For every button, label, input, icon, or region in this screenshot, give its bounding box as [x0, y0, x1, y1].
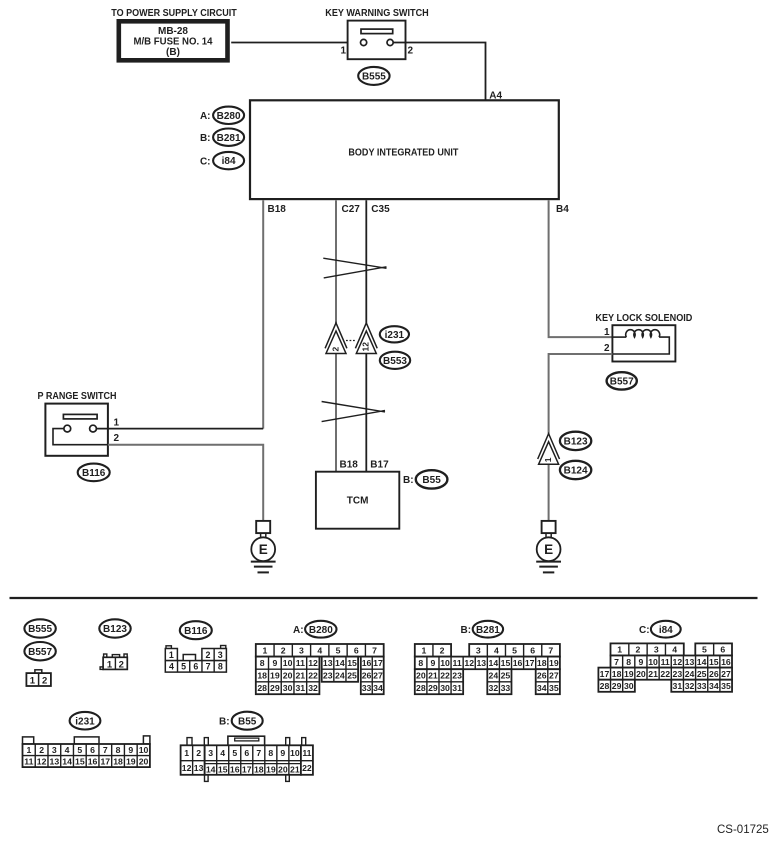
- svg-text:(B): (B): [166, 47, 180, 58]
- svg-text:30: 30: [440, 683, 450, 693]
- svg-text:B116: B116: [82, 468, 106, 479]
- svg-text:26: 26: [709, 669, 719, 679]
- svg-text:MB-28: MB-28: [158, 26, 188, 37]
- svg-text:17: 17: [242, 765, 252, 775]
- svg-text:B17: B17: [370, 460, 389, 471]
- svg-text:12: 12: [672, 657, 682, 667]
- svg-text:18: 18: [612, 669, 622, 679]
- svg-text:12: 12: [464, 658, 474, 668]
- svg-text:15: 15: [218, 765, 228, 775]
- svg-text:32: 32: [489, 683, 499, 693]
- svg-text:A:: A:: [293, 625, 304, 636]
- svg-text:7: 7: [614, 657, 619, 667]
- svg-text:7: 7: [372, 646, 377, 656]
- svg-text:B18: B18: [268, 204, 287, 215]
- svg-text:25: 25: [347, 671, 357, 681]
- svg-text:E: E: [259, 542, 268, 557]
- svg-text:2: 2: [196, 748, 201, 758]
- svg-text:11: 11: [296, 658, 305, 668]
- svg-text:30: 30: [624, 681, 634, 691]
- svg-text:M/B FUSE NO. 14: M/B FUSE NO. 14: [134, 36, 213, 47]
- svg-text:29: 29: [270, 683, 280, 693]
- svg-text:6: 6: [193, 662, 198, 672]
- svg-text:7: 7: [103, 745, 108, 755]
- svg-text:B281: B281: [476, 625, 500, 636]
- svg-text:B:: B:: [403, 475, 414, 486]
- svg-text:1: 1: [26, 745, 31, 755]
- svg-text:9: 9: [272, 658, 277, 668]
- svg-text:27: 27: [549, 671, 559, 681]
- svg-text:28: 28: [257, 683, 267, 693]
- svg-text:C:: C:: [639, 625, 650, 636]
- svg-text:23: 23: [673, 669, 683, 679]
- svg-text:32: 32: [685, 681, 695, 691]
- svg-text:14: 14: [335, 658, 345, 668]
- svg-text:14: 14: [697, 657, 707, 667]
- svg-text:3: 3: [208, 748, 213, 758]
- svg-text:22: 22: [440, 671, 450, 681]
- svg-text:7: 7: [206, 662, 211, 672]
- svg-text:1: 1: [421, 646, 426, 656]
- svg-text:A:: A:: [200, 111, 211, 122]
- svg-text:34: 34: [709, 681, 719, 691]
- svg-text:B55: B55: [238, 716, 257, 727]
- svg-text:7: 7: [548, 646, 553, 656]
- svg-text:20: 20: [139, 757, 149, 767]
- svg-text:B:: B:: [461, 625, 472, 636]
- svg-text:8: 8: [268, 748, 273, 758]
- svg-text:16: 16: [513, 658, 523, 668]
- svg-text:8: 8: [218, 662, 223, 672]
- svg-text:4: 4: [220, 748, 225, 758]
- svg-text:23: 23: [452, 671, 462, 681]
- svg-text:17: 17: [373, 658, 383, 668]
- svg-text:4: 4: [494, 646, 499, 656]
- svg-text:5: 5: [232, 748, 237, 758]
- svg-text:24: 24: [685, 669, 695, 679]
- svg-text:KEY WARNING SWITCH: KEY WARNING SWITCH: [325, 8, 429, 19]
- svg-text:6: 6: [244, 748, 249, 758]
- svg-text:27: 27: [373, 671, 383, 681]
- svg-text:16: 16: [721, 657, 731, 667]
- svg-text:19: 19: [624, 669, 634, 679]
- svg-text:B4: B4: [556, 204, 569, 215]
- svg-text:21: 21: [290, 765, 300, 775]
- svg-text:B123: B123: [103, 624, 127, 635]
- svg-text:1: 1: [184, 748, 189, 758]
- svg-text:6: 6: [530, 646, 535, 656]
- svg-text:20: 20: [636, 669, 646, 679]
- svg-text:33: 33: [697, 681, 707, 691]
- svg-text:B116: B116: [184, 626, 208, 637]
- svg-text:16: 16: [88, 757, 98, 767]
- svg-text:1: 1: [341, 46, 347, 57]
- svg-text:10: 10: [139, 745, 149, 755]
- svg-text:17: 17: [525, 658, 535, 668]
- svg-text:13: 13: [476, 658, 486, 668]
- svg-text:2: 2: [206, 650, 211, 660]
- svg-text:18: 18: [537, 658, 547, 668]
- svg-text:1: 1: [604, 327, 610, 338]
- svg-text:12: 12: [361, 342, 371, 352]
- svg-text:2: 2: [408, 46, 414, 57]
- svg-text:33: 33: [501, 683, 511, 693]
- svg-text:10: 10: [648, 657, 658, 667]
- svg-text:14: 14: [489, 658, 499, 668]
- svg-text:8: 8: [116, 745, 121, 755]
- svg-text:9: 9: [638, 657, 643, 667]
- svg-text:4: 4: [672, 645, 677, 655]
- svg-text:19: 19: [126, 757, 136, 767]
- svg-text:C:: C:: [200, 156, 211, 167]
- svg-text:3: 3: [52, 745, 57, 755]
- svg-text:8: 8: [260, 658, 265, 668]
- svg-text:C27: C27: [342, 204, 361, 215]
- svg-text:3: 3: [299, 646, 304, 656]
- svg-text:B280: B280: [309, 625, 333, 636]
- svg-text:29: 29: [428, 683, 438, 693]
- svg-text:2: 2: [119, 660, 124, 671]
- svg-text:15: 15: [75, 757, 85, 767]
- svg-text:B553: B553: [383, 356, 407, 367]
- svg-text:34: 34: [537, 683, 547, 693]
- svg-text:B123: B123: [564, 437, 588, 448]
- svg-text:5: 5: [77, 745, 82, 755]
- svg-text:23: 23: [323, 671, 333, 681]
- svg-text:21: 21: [648, 669, 658, 679]
- svg-text:C35: C35: [371, 204, 390, 215]
- svg-text:26: 26: [537, 671, 547, 681]
- svg-text:7: 7: [256, 748, 261, 758]
- svg-text:13: 13: [685, 657, 695, 667]
- svg-text:17: 17: [100, 757, 110, 767]
- svg-text:1: 1: [543, 457, 553, 462]
- svg-text:B280: B280: [217, 111, 241, 122]
- svg-text:3: 3: [218, 650, 223, 660]
- svg-text:27: 27: [721, 669, 731, 679]
- svg-text:20: 20: [283, 671, 293, 681]
- svg-text:1: 1: [263, 646, 268, 656]
- svg-text:17: 17: [600, 669, 610, 679]
- svg-text:11: 11: [24, 757, 33, 767]
- svg-text:32: 32: [308, 683, 318, 693]
- svg-text:13: 13: [323, 658, 333, 668]
- svg-text:2: 2: [636, 645, 641, 655]
- svg-text:33: 33: [362, 683, 372, 693]
- svg-text:29: 29: [612, 681, 622, 691]
- svg-text:10: 10: [290, 748, 300, 758]
- svg-text:1: 1: [169, 650, 174, 660]
- svg-text:12: 12: [308, 658, 318, 668]
- svg-text:i231: i231: [385, 330, 405, 341]
- svg-text:2: 2: [330, 347, 340, 352]
- svg-text:1: 1: [107, 660, 113, 671]
- svg-text:35: 35: [721, 681, 731, 691]
- svg-text:9: 9: [431, 658, 436, 668]
- svg-text:9: 9: [280, 748, 285, 758]
- svg-text:i231: i231: [75, 716, 95, 727]
- svg-text:25: 25: [501, 671, 511, 681]
- svg-text:6: 6: [720, 645, 725, 655]
- svg-text:B555: B555: [28, 624, 52, 635]
- svg-text:P RANGE SWITCH: P RANGE SWITCH: [38, 391, 117, 402]
- svg-text:B557: B557: [610, 377, 634, 388]
- svg-text:18: 18: [257, 671, 267, 681]
- svg-text:12: 12: [182, 763, 192, 773]
- svg-text:B281: B281: [217, 133, 241, 144]
- svg-text:11: 11: [302, 748, 311, 758]
- svg-text:22: 22: [660, 669, 670, 679]
- svg-text:19: 19: [266, 765, 276, 775]
- svg-text:TO POWER SUPPLY CIRCUIT: TO POWER SUPPLY CIRCUIT: [111, 8, 237, 19]
- svg-text:15: 15: [501, 658, 511, 668]
- svg-text:5: 5: [336, 646, 341, 656]
- svg-text:8: 8: [626, 657, 631, 667]
- svg-text:26: 26: [362, 671, 372, 681]
- svg-text:TCM: TCM: [347, 496, 369, 507]
- svg-text:11: 11: [453, 658, 462, 668]
- svg-text:B557: B557: [28, 647, 52, 658]
- svg-text:35: 35: [549, 683, 559, 693]
- svg-text:22: 22: [302, 763, 312, 773]
- svg-text:13: 13: [50, 757, 60, 767]
- svg-text:B555: B555: [362, 72, 386, 83]
- svg-text:31: 31: [673, 681, 683, 691]
- svg-text:1: 1: [114, 418, 120, 429]
- svg-text:5: 5: [702, 645, 707, 655]
- svg-text:10: 10: [440, 658, 450, 668]
- svg-text:13: 13: [194, 763, 204, 773]
- svg-text:31: 31: [295, 683, 305, 693]
- svg-text:16: 16: [362, 658, 372, 668]
- svg-text:3: 3: [476, 646, 481, 656]
- svg-text:CS-01725: CS-01725: [717, 824, 769, 836]
- svg-text:15: 15: [709, 657, 719, 667]
- svg-text:25: 25: [697, 669, 707, 679]
- svg-text:i84: i84: [222, 156, 236, 167]
- svg-text:20: 20: [278, 765, 288, 775]
- svg-text:31: 31: [452, 683, 462, 693]
- svg-text:2: 2: [114, 433, 120, 444]
- svg-text:E: E: [544, 542, 553, 557]
- svg-text:B55: B55: [422, 475, 441, 486]
- svg-text:15: 15: [347, 658, 357, 668]
- svg-text:30: 30: [283, 683, 293, 693]
- svg-text:2: 2: [42, 676, 47, 687]
- svg-text:18: 18: [113, 757, 123, 767]
- svg-text:10: 10: [283, 658, 293, 668]
- svg-text:1: 1: [617, 645, 622, 655]
- svg-text:B:: B:: [200, 133, 211, 144]
- svg-text:4: 4: [65, 745, 70, 755]
- svg-text:4: 4: [317, 646, 322, 656]
- svg-text:22: 22: [308, 671, 318, 681]
- svg-text:28: 28: [600, 681, 610, 691]
- svg-text:2: 2: [604, 343, 610, 354]
- svg-text:9: 9: [128, 745, 133, 755]
- svg-text:6: 6: [354, 646, 359, 656]
- svg-text:B18: B18: [340, 460, 359, 471]
- svg-text:2: 2: [281, 646, 286, 656]
- svg-text:5: 5: [181, 662, 186, 672]
- svg-text:B:: B:: [219, 716, 230, 727]
- svg-text:34: 34: [373, 683, 383, 693]
- svg-text:21: 21: [428, 671, 438, 681]
- svg-text:8: 8: [418, 658, 423, 668]
- svg-text:21: 21: [295, 671, 305, 681]
- svg-text:24: 24: [335, 671, 345, 681]
- svg-text:5: 5: [512, 646, 517, 656]
- svg-text:B124: B124: [564, 466, 588, 477]
- svg-text:3: 3: [654, 645, 659, 655]
- svg-text:11: 11: [661, 657, 670, 667]
- svg-text:6: 6: [90, 745, 95, 755]
- svg-text:12: 12: [37, 757, 47, 767]
- svg-text:BODY INTEGRATED UNIT: BODY INTEGRATED UNIT: [348, 148, 458, 159]
- svg-text:2: 2: [440, 646, 445, 656]
- svg-text:14: 14: [62, 757, 72, 767]
- svg-text:24: 24: [489, 671, 499, 681]
- svg-text:KEY LOCK SOLENOID: KEY LOCK SOLENOID: [595, 313, 692, 324]
- svg-text:2: 2: [39, 745, 44, 755]
- svg-text:28: 28: [416, 683, 426, 693]
- svg-text:16: 16: [230, 765, 240, 775]
- svg-text:14: 14: [206, 765, 216, 775]
- svg-text:20: 20: [416, 671, 426, 681]
- svg-text:18: 18: [254, 765, 264, 775]
- svg-text:i84: i84: [659, 625, 673, 636]
- svg-text:4: 4: [169, 662, 174, 672]
- svg-text:19: 19: [270, 671, 280, 681]
- svg-text:1: 1: [30, 676, 36, 687]
- svg-text:19: 19: [549, 658, 559, 668]
